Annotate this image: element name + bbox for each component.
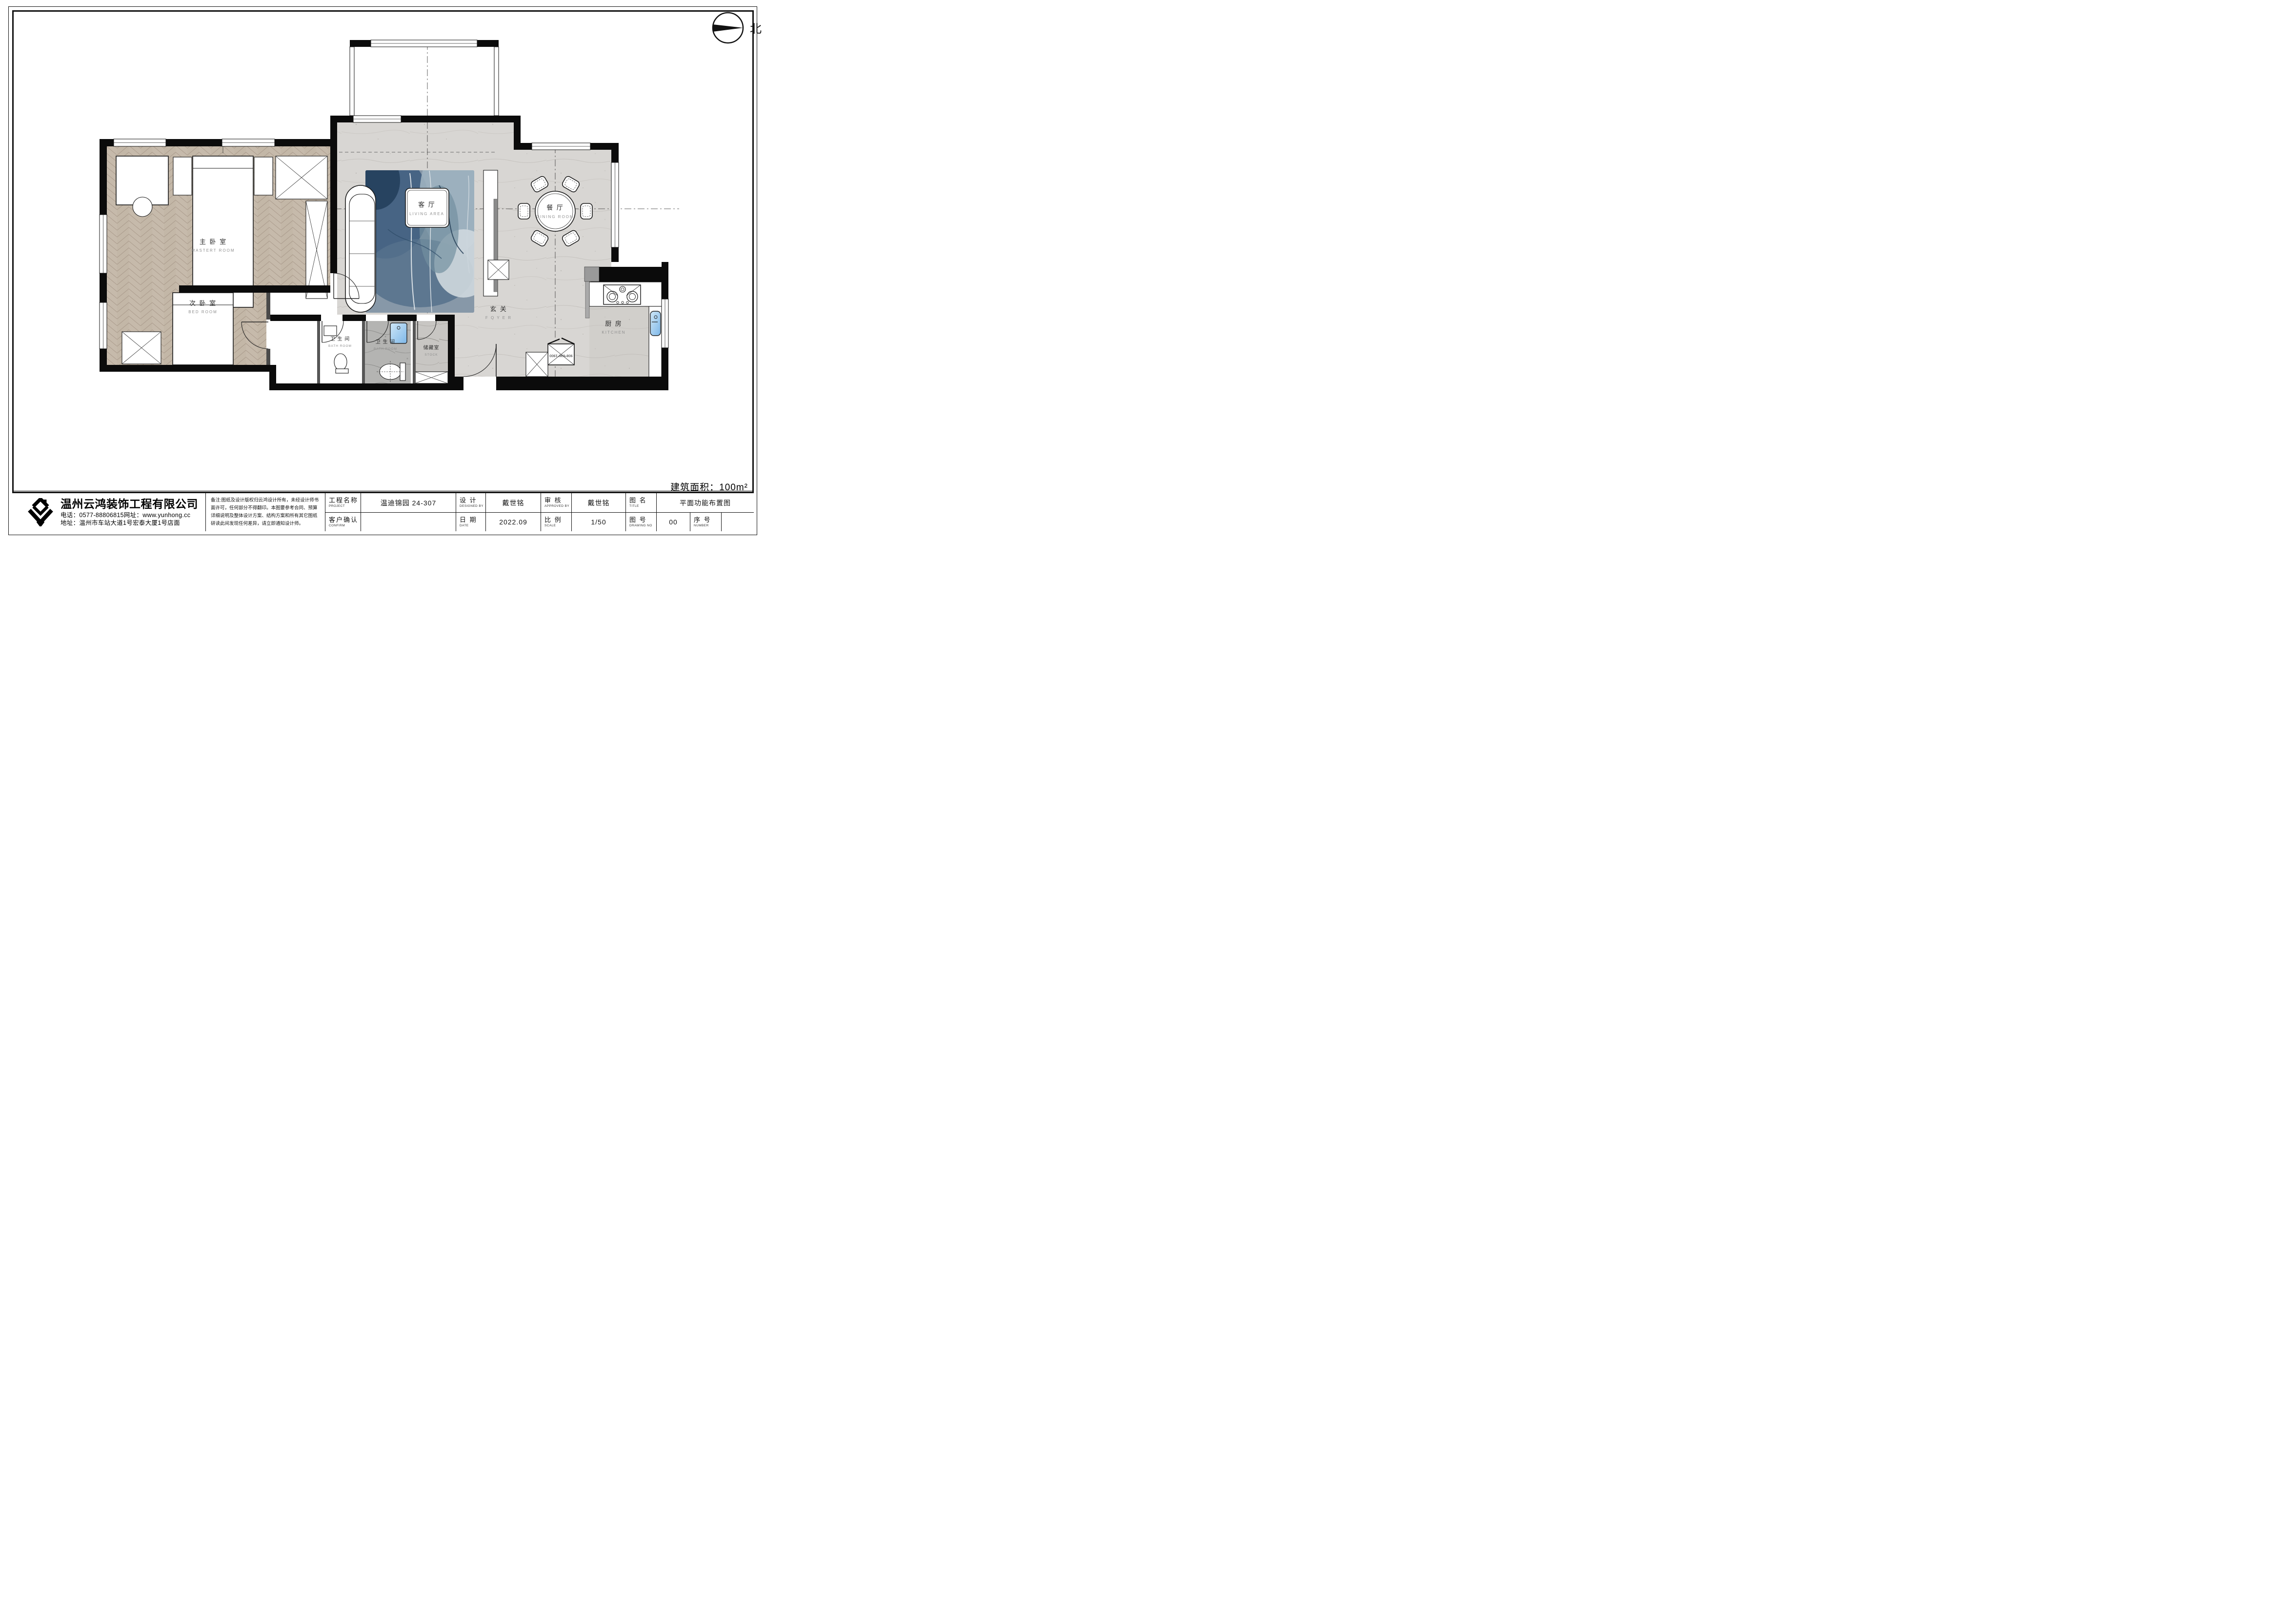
bath2-label-zh: 卫 生 间 [376,339,396,345]
number-value-cell [721,512,754,531]
scale-label-cell: 比 例 SCALE [541,512,571,531]
balcony-glass-left [350,47,354,116]
left-window-1 [100,215,107,273]
foyer-label-zh: 玄 关 [490,305,507,313]
notes-cell: 备注:图纸及设计版权归云鸿设计所有，未经设计师书面许可，任何部分不得翻印。本图要… [205,493,325,531]
date-label-en: DATE [460,524,468,528]
balcony-floor [354,47,494,116]
scale-label-zh: 比 例 [544,517,562,524]
bath1-label-en: BATH ROOM [328,344,352,348]
scale-value-cell: 1/50 [571,512,625,531]
confirm-label-cell: 客户确认 CONFIRM [325,512,361,531]
kitchen-sliding-door [585,281,589,318]
confirm-value-cell [361,512,456,531]
project-label-cell: 工程名称 PROJECT [325,493,361,512]
kitchen-window [662,299,668,348]
bath1-sink [324,326,337,336]
master-window-2 [222,139,275,146]
living-label-en: LIVING AREA [409,212,444,216]
dining-label-en: DINING ROOM [536,215,574,219]
design-label-cell: 设 计 DESIGNED BY [456,493,485,512]
drawingname-label-zh: 图 名 [629,497,647,504]
project-label-zh: 工程名称 [329,497,358,504]
confirm-label-en: CONFIRM [329,524,345,528]
date-label-zh: 日 期 [460,517,477,524]
approve-label-en: APPROVED BY [544,504,569,508]
shoe-cabinet [526,352,548,377]
company-address: 地址：温州市车站大道1号宏泰大厦1号店面 [60,519,198,527]
drawingname-label-cell: 图 名 TITLE [625,493,656,512]
dining-table [535,191,575,231]
master-room-label-zh: 主 卧 室 [200,238,227,245]
bath2-label-en: BATH ROOM [374,347,397,351]
design-label-en: DESIGNED BY [460,504,483,508]
company-name: 温州云鸿装饰工程有限公司 [60,497,198,511]
notes-text: 备注:图纸及设计版权归云鸿设计所有，未经设计师书面许可，任何部分不得翻印。本图要… [206,494,325,530]
date-label-cell: 日 期 DATE [456,512,485,531]
north-arrow: 北 [713,13,762,43]
kitchen-flue [584,267,599,281]
company-logo [26,498,55,526]
storage-label-en: STOCK [424,353,438,357]
date-value-cell: 2022.09 [485,512,541,531]
design-value-cell: 戴世铭 [485,493,541,512]
project-label-en: PROJECT [329,504,345,508]
titleblock-top-rule [12,491,754,492]
company-phone: 电话：0577-88806815网址：www.yunhong.cc [60,511,198,520]
approve-label-cell: 审 核 APPROVED BY [541,493,571,512]
floor-plan: 908*636*1900 [0,0,765,541]
drawingname-label-en: TITLE [629,504,639,508]
bath1-toilet [334,354,347,370]
dining-right-window [611,162,619,247]
kitchen-label-en: KITCHEN [602,330,625,335]
dining-window [532,143,590,150]
scale-label-en: SCALE [544,524,556,528]
number-label-cell: 序 号 NUMBER [690,512,721,531]
storage-cabinet [415,372,448,383]
north-arrow-needle [713,24,743,32]
balcony-glass-right [494,47,499,116]
storage-label-zh: 储藏室 [423,344,440,351]
balcony-window [371,40,477,47]
drawingno-label-en: DRAWING NO [629,524,652,528]
dresser-stool [133,197,152,217]
drawing-sheet: 908*636*1900 [0,0,765,541]
confirm-label-zh: 客户确认 [329,517,358,524]
bedroom-label-en: BED ROOM [188,310,218,314]
drawingno-label-zh: 图 号 [629,517,647,524]
kitchen-label-zh: 厨 房 [605,320,623,327]
bath1-label-zh: 卫 生 间 [330,336,350,342]
foyer-label-en: F O Y E R [485,316,512,320]
title-block: 温州云鸿装饰工程有限公司 电话：0577-88806815网址：www.yunh… [12,492,754,531]
nightstand-left [173,157,192,195]
kitchen-sink [650,311,661,336]
project-value-cell: 温迪锦园 24-307 [361,493,456,512]
nightstand-right [254,157,273,195]
approve-label-zh: 审 核 [544,497,562,504]
design-label-zh: 设 计 [460,497,477,504]
living-label-zh: 客 厅 [418,201,436,208]
living-balcony-door [353,116,401,122]
living-sofa [345,185,376,312]
approve-value-cell: 戴世铭 [571,493,625,512]
drawingname-value-cell: 平面功能布置图 [656,493,754,512]
company-cell: 温州云鸿装饰工程有限公司 电话：0577-88806815网址：www.yunh… [12,493,205,531]
gas-stove [604,285,641,304]
number-label-en: NUMBER [694,524,709,528]
master-window-1 [114,139,166,146]
dining-side-cabinet [488,260,509,280]
bedroom-label-zh: 次 卧 室 [189,300,217,307]
north-label: 北 [750,22,762,36]
master-room-label-en: MASTERT ROOM [191,248,235,253]
left-window-2 [100,302,107,349]
drawingno-value-cell: 00 [656,512,690,531]
fridge-size-label: 908*636*1900 [549,354,573,358]
number-label-zh: 序 号 [694,517,711,524]
drawingno-label-cell: 图 号 DRAWING NO [625,512,656,531]
dining-label-zh: 餐 厅 [546,204,564,211]
